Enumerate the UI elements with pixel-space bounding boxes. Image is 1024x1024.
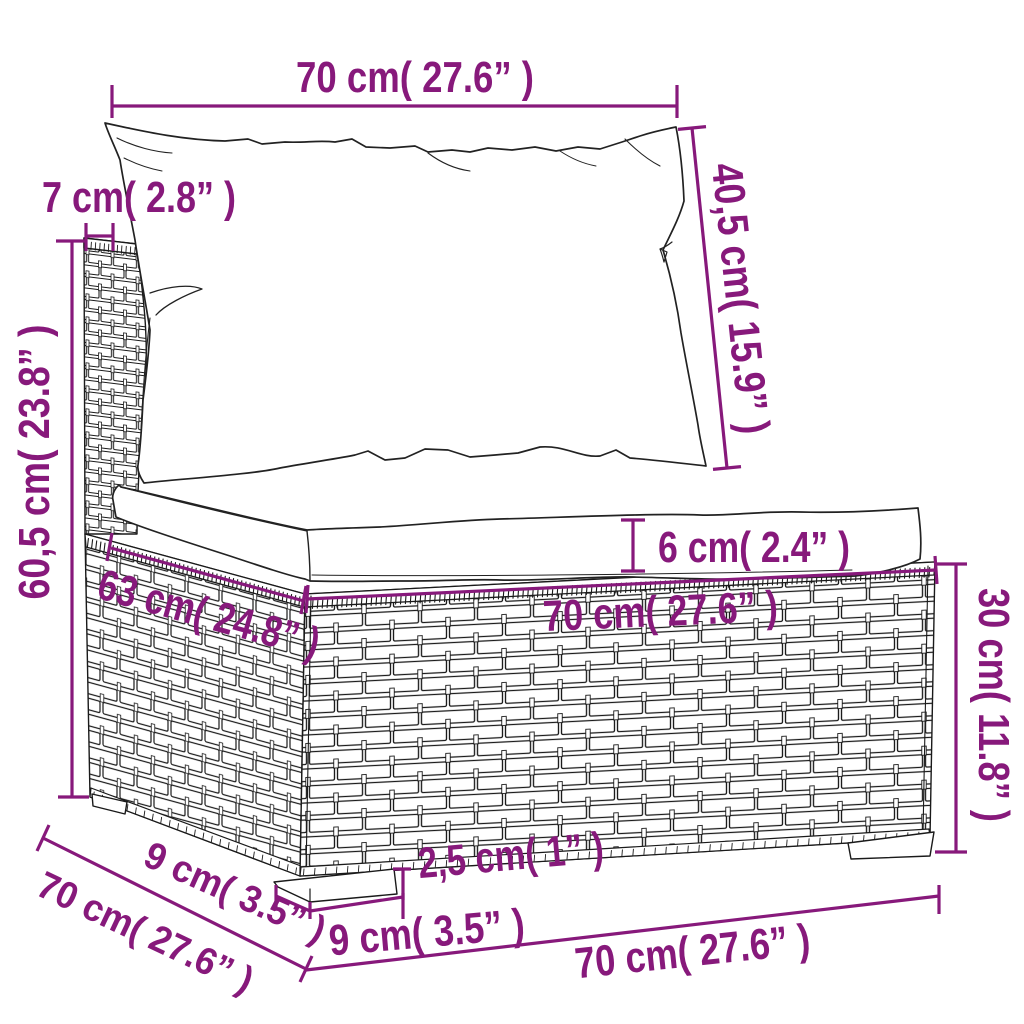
svg-text:6 cm( 2.4” ): 6 cm( 2.4” )	[658, 524, 850, 572]
svg-text:70 cm( 27.6” ): 70 cm( 27.6” )	[542, 583, 779, 641]
svg-text:70 cm( 27.6” ): 70 cm( 27.6” )	[296, 54, 534, 102]
svg-text:30 cm( 11.8” ): 30 cm( 11.8” )	[969, 588, 1017, 822]
svg-text:7 cm( 2.8” ): 7 cm( 2.8” )	[42, 174, 236, 222]
svg-text:60,5 cm( 23.8” ): 60,5 cm( 23.8” )	[11, 325, 59, 600]
